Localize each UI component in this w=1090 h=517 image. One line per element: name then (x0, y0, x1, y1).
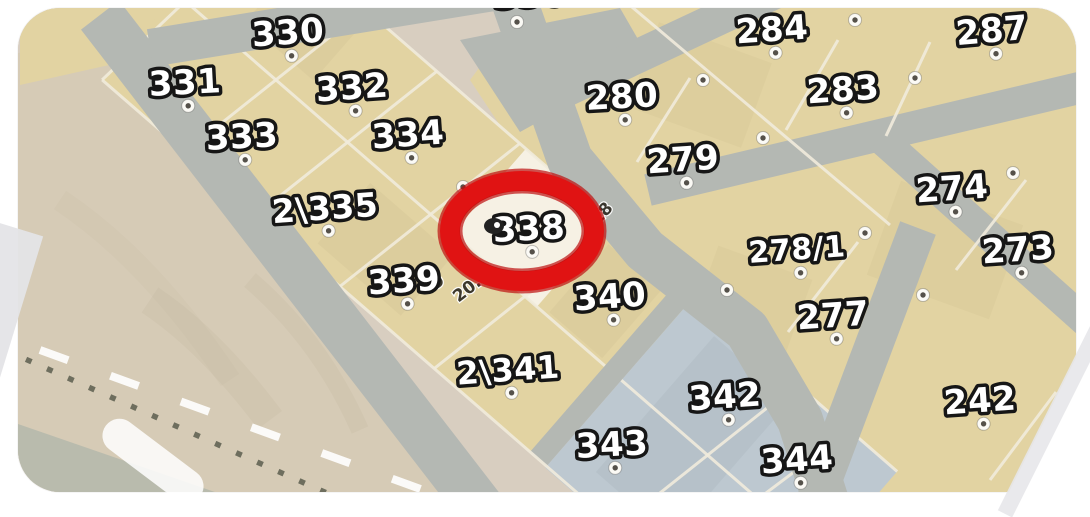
svg-text:340: 340 (572, 275, 647, 320)
svg-text:330: 330 (250, 11, 325, 56)
svg-text:242: 242 (942, 379, 1017, 424)
svg-text:284: 284 (734, 8, 809, 52)
svg-text:331: 331 (148, 61, 222, 105)
svg-text:278/1: 278/1 (747, 229, 846, 271)
parcel-map[interactable]: 20.9918 3303313323333342\335336338339340… (18, 8, 1076, 492)
svg-text:344: 344 (759, 438, 834, 483)
svg-text:334: 334 (370, 113, 445, 158)
svg-text:2\341: 2\341 (455, 347, 561, 392)
svg-text:287: 287 (954, 8, 1030, 54)
svg-text:343: 343 (575, 423, 649, 467)
svg-text:241: 241 (1054, 439, 1076, 484)
svg-text:274: 274 (914, 167, 989, 212)
svg-text:342: 342 (687, 375, 762, 420)
marker-blob (484, 218, 504, 234)
svg-text:2\335: 2\335 (271, 185, 380, 231)
svg-text:279: 279 (645, 138, 720, 183)
svg-text:283: 283 (805, 68, 880, 113)
svg-text:277: 277 (795, 294, 870, 339)
parcel-label-241: 241 (1054, 439, 1076, 484)
page-background: { "page": { "background": "#ffffff" }, "… (0, 0, 1090, 500)
svg-text:273: 273 (980, 228, 1055, 273)
svg-text:332: 332 (314, 66, 389, 111)
map-card: 20.9918 3303313323333342\335336338339340… (18, 8, 1076, 492)
svg-text:333: 333 (205, 115, 279, 159)
svg-text:339: 339 (366, 259, 441, 304)
svg-text:280: 280 (585, 75, 659, 119)
